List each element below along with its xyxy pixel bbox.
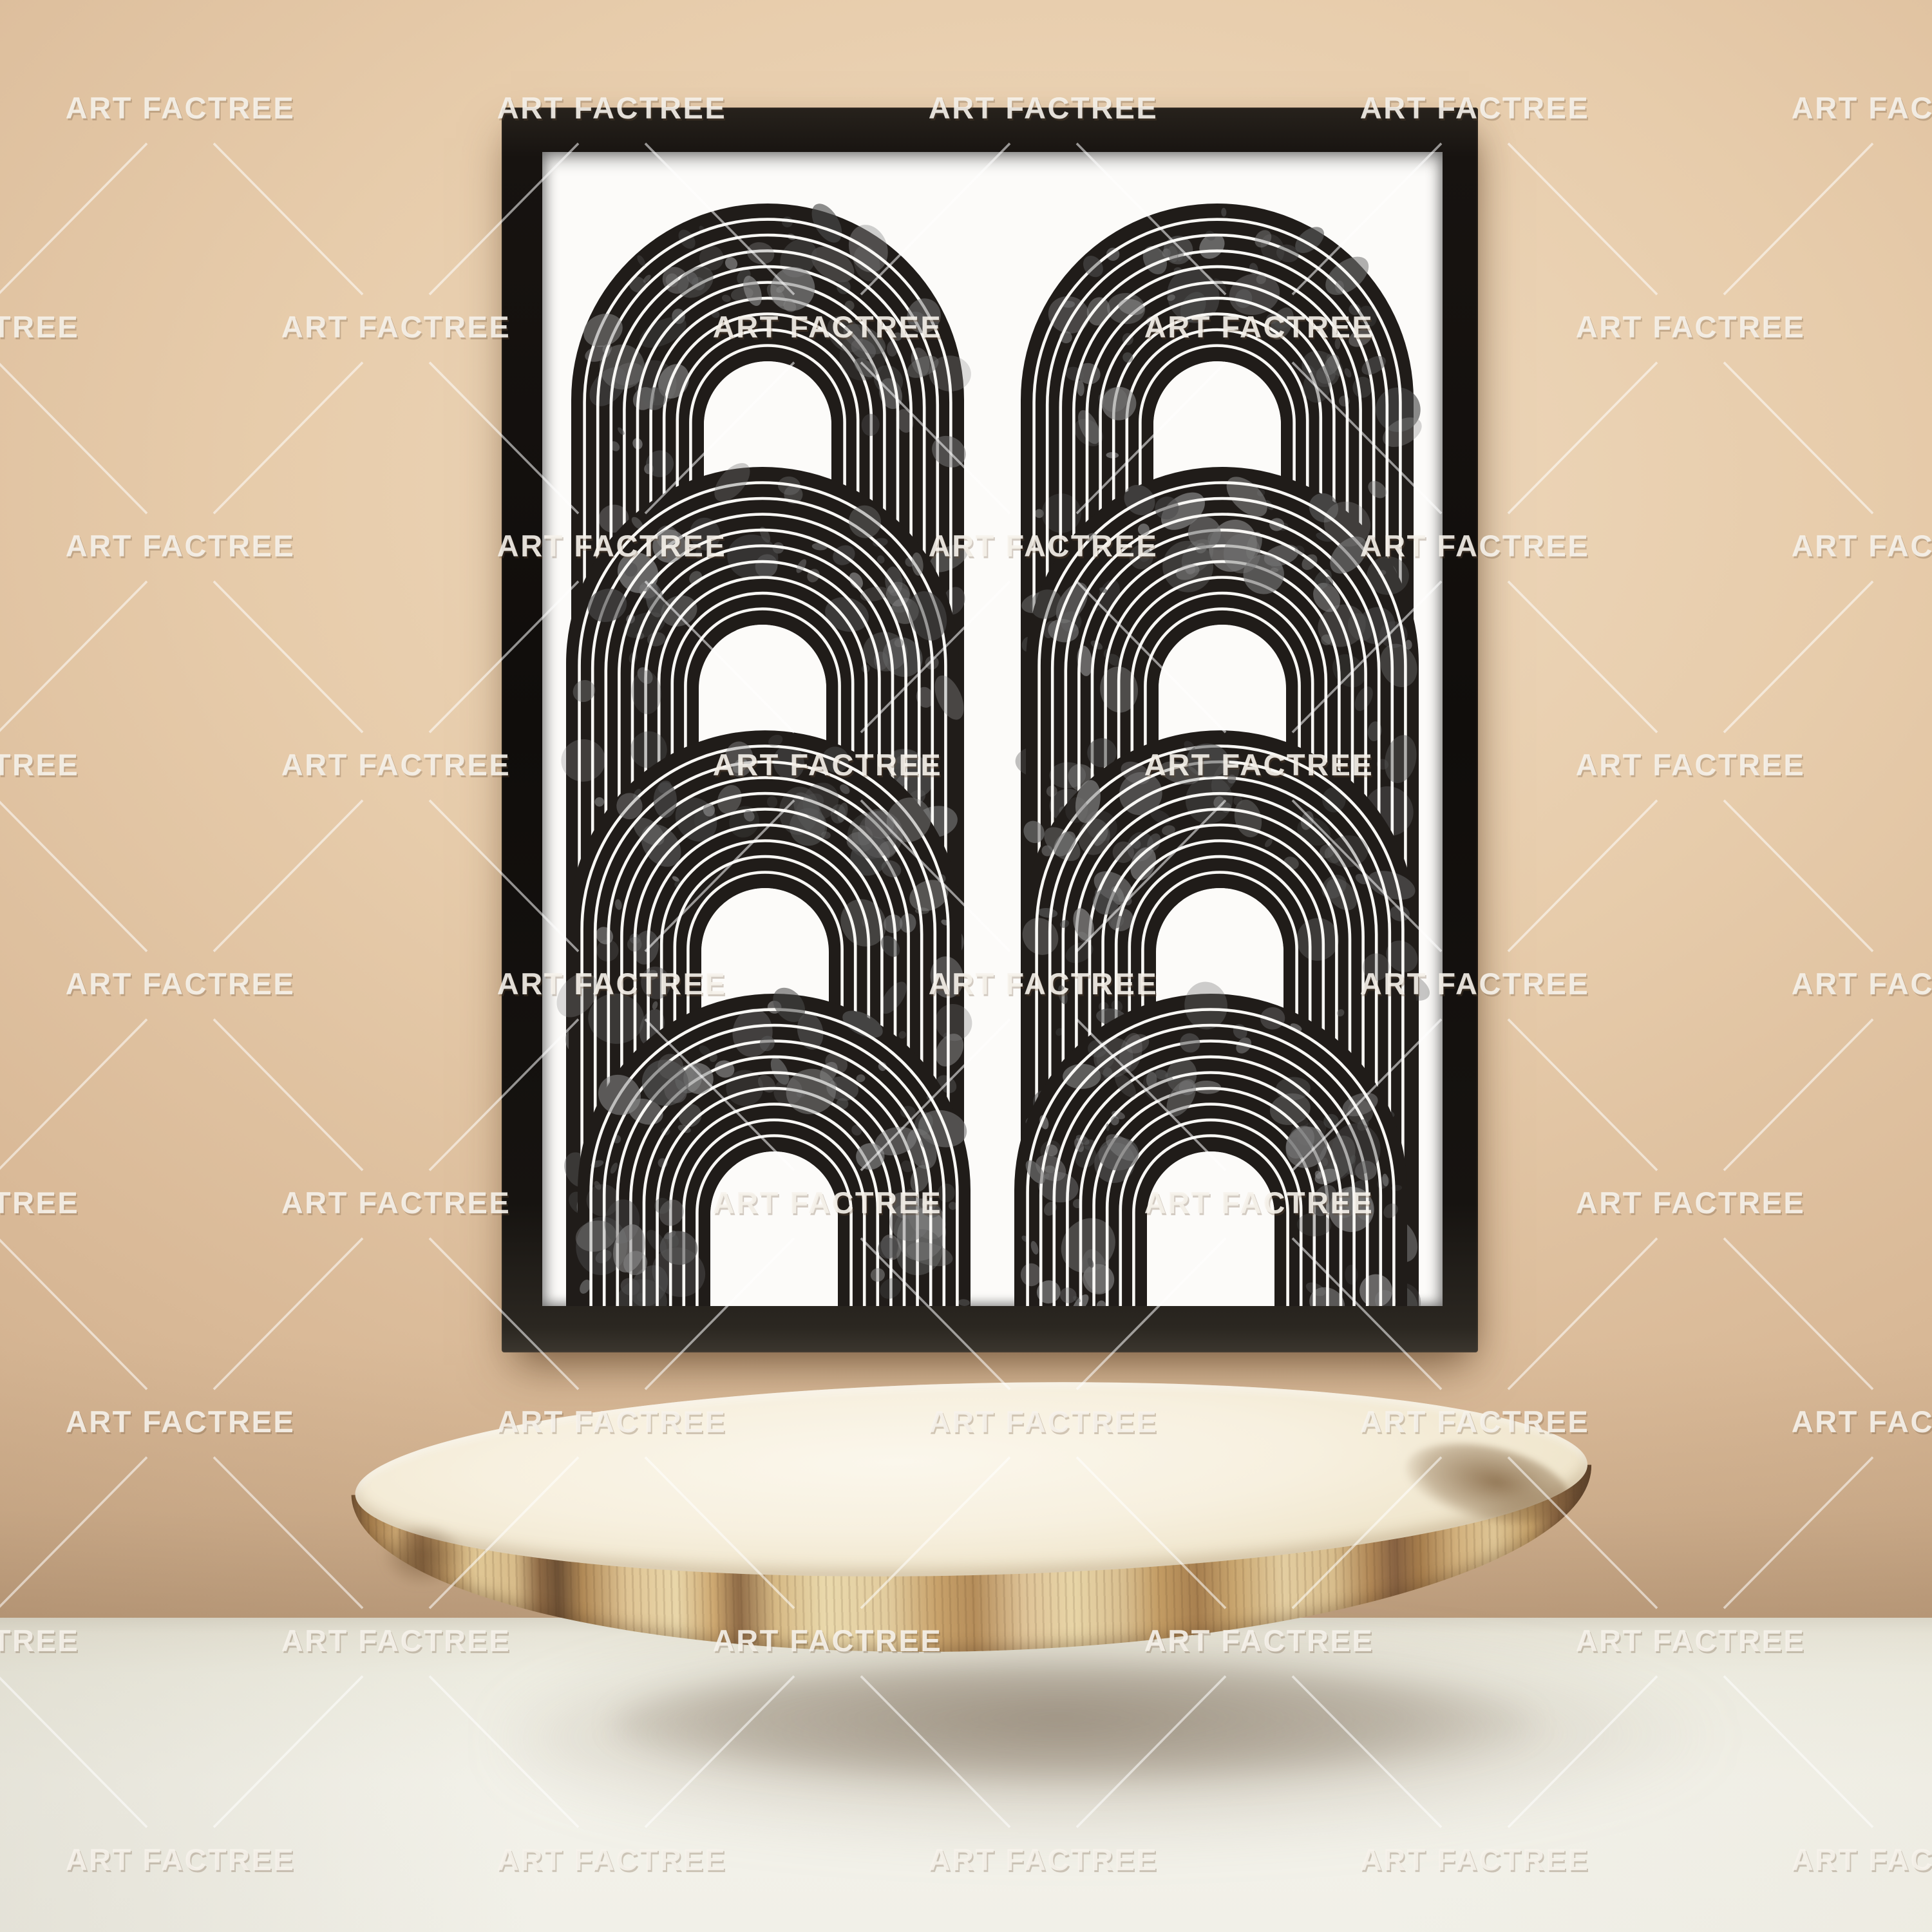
arch-opening (710, 1151, 838, 1306)
stacked-arches-artwork (542, 152, 1443, 1306)
texture-blob (1335, 338, 1341, 350)
art-print-paper (542, 152, 1443, 1306)
wood-slice-pedestal (348, 1368, 1597, 1681)
texture-blob (654, 782, 677, 818)
mockup-scene: ART FACTREEART FACTREEART FACTREEART FAC… (0, 0, 1932, 1932)
pedestal-shadow-core (612, 1662, 1539, 1787)
picture-frame (502, 108, 1478, 1352)
texture-blob (1322, 1158, 1329, 1166)
arch-opening (1147, 1151, 1274, 1306)
texture-blob (1332, 1123, 1380, 1175)
